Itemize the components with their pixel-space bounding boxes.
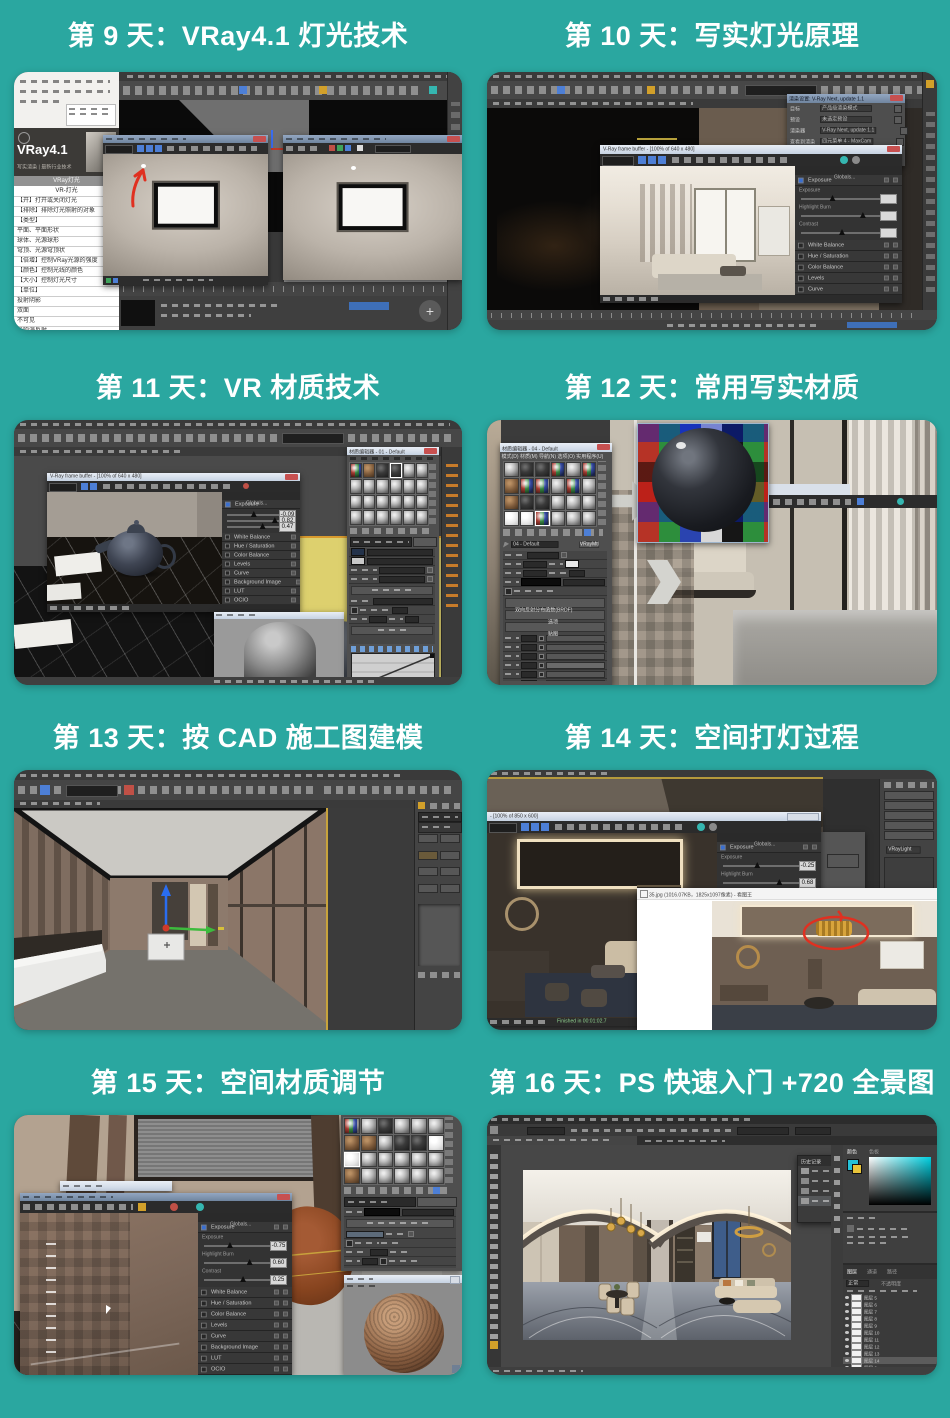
highlight-burn-value[interactable]: 0.60	[270, 1258, 287, 1268]
contrast-slider[interactable]: 0.25	[204, 1279, 286, 1281]
layer-thumbnail[interactable]	[851, 1343, 862, 1350]
blue-channel-icon[interactable]	[345, 145, 351, 151]
vfb-icons[interactable]	[103, 484, 233, 489]
material-swatches[interactable]	[349, 462, 429, 526]
material-swatch-icon[interactable]	[582, 511, 597, 526]
vfb-icon[interactable]	[531, 823, 539, 831]
rollout-header[interactable]	[346, 1219, 454, 1228]
me-side-buttons[interactable]	[429, 462, 436, 524]
checkbox-icon[interactable]	[225, 571, 230, 576]
checkbox-icon[interactable]	[539, 645, 544, 650]
command-panel-strip[interactable]	[922, 72, 937, 330]
background-window-titlebar[interactable]	[60, 1181, 172, 1191]
toolbar-input[interactable]	[282, 433, 344, 444]
material-swatch-icon[interactable]	[582, 478, 597, 493]
material-swatches[interactable]	[503, 461, 597, 527]
modifier-dropdown[interactable]	[418, 822, 462, 833]
material-swatch-icon[interactable]	[350, 479, 362, 494]
vfb-icon[interactable]	[155, 145, 162, 152]
red-channel-icon[interactable]	[329, 145, 335, 151]
material-swatch-icon[interactable]	[403, 463, 415, 478]
toolbar-icon[interactable]	[319, 86, 327, 94]
max-toolbar[interactable]	[14, 429, 462, 447]
close-icon[interactable]	[424, 448, 437, 454]
exposure-slider[interactable]	[801, 198, 896, 200]
vfb-icons[interactable]	[286, 146, 322, 151]
me-toolbar-icon[interactable]	[433, 1187, 440, 1194]
param-row[interactable]	[344, 1248, 456, 1257]
vfb-window[interactable]: V-Ray frame buffer - [100% of 640 x 480]	[47, 473, 300, 612]
layer-thumbnail[interactable]	[851, 1294, 862, 1301]
panel-button[interactable]	[884, 831, 934, 840]
resolution-dropdown[interactable]	[375, 145, 411, 153]
curve-toolbar[interactable]	[351, 646, 433, 652]
material-swatch-icon[interactable]	[504, 495, 519, 510]
correction-row[interactable]: Color Balance	[222, 551, 300, 560]
eye-icon[interactable]	[845, 1303, 849, 1306]
viewport-label[interactable]	[20, 802, 100, 805]
checkbox-icon[interactable]	[225, 501, 231, 507]
material-swatch-icon[interactable]	[416, 495, 428, 510]
me-titlebar[interactable]: 材质编辑器 - 04 - Default	[500, 443, 612, 452]
close-icon[interactable]	[597, 444, 610, 450]
lock-row[interactable]	[847, 1290, 917, 1292]
window-buttons[interactable]	[787, 813, 819, 821]
material-swatch-icon[interactable]	[428, 1118, 444, 1134]
material-swatch-icon[interactable]	[416, 510, 428, 525]
eye-icon[interactable]	[845, 1296, 849, 1299]
material-swatch-icon[interactable]	[403, 510, 415, 525]
expand-icon[interactable]	[274, 1301, 279, 1306]
correction-row[interactable]: Levels	[795, 273, 902, 284]
material-swatch-icon[interactable]	[551, 495, 566, 510]
material-swatch-icon[interactable]	[411, 1168, 427, 1184]
expand-icon[interactable]	[274, 1312, 279, 1317]
color-chip-icon[interactable]	[565, 560, 579, 568]
highlight-burn-slider[interactable]	[801, 215, 896, 217]
background-swatch-icon[interactable]	[852, 1164, 862, 1174]
material-swatch-icon[interactable]	[390, 510, 402, 525]
spinner-icon[interactable]	[408, 1231, 414, 1237]
material-swatch-icon[interactable]	[378, 1152, 394, 1168]
create-tab-icon[interactable]	[418, 802, 425, 809]
image-viewer-window[interactable]: 35.jpg (1016.07KB，1825x1097像素) - 看图王	[637, 888, 937, 1030]
material-swatch-icon[interactable]	[344, 1118, 360, 1134]
preview-titlebar[interactable]	[344, 1275, 462, 1283]
material-name-dropdown[interactable]: 04 - Default	[511, 541, 559, 547]
checkbox-icon[interactable]	[798, 253, 804, 259]
checkbox-icon[interactable]	[201, 1300, 207, 1306]
material-swatch-icon[interactable]	[390, 479, 402, 494]
param-row[interactable]	[349, 557, 435, 566]
correction-row[interactable]: OCIO	[222, 596, 300, 604]
correction-row[interactable]: White Balance	[222, 533, 300, 542]
vfb-icon[interactable]	[709, 823, 717, 831]
max-menubar[interactable]	[493, 75, 923, 78]
list-item[interactable]: 双面	[14, 307, 119, 317]
checkbox-icon[interactable]	[539, 672, 544, 677]
exposure-slider[interactable]: -0.75	[204, 1245, 286, 1247]
checkbox-icon[interactable]	[225, 598, 230, 603]
tab-layers[interactable]: 图层	[847, 1268, 857, 1275]
material-swatches[interactable]	[343, 1117, 445, 1185]
menu-items[interactable]	[491, 1118, 751, 1121]
eye-icon[interactable]	[845, 1359, 849, 1362]
timeline-bar[interactable]	[487, 310, 937, 320]
correction-row[interactable]: Levels	[222, 560, 300, 569]
material-swatch-icon[interactable]	[535, 495, 550, 510]
reset-icon[interactable]	[283, 1323, 288, 1328]
document-tab-active[interactable]	[487, 1136, 637, 1145]
checkbox-icon[interactable]	[225, 580, 230, 585]
material-editor-window[interactable]: 材质编辑器 - 04 - Default 模式(D) 材质(M) 导航(N) 选…	[500, 443, 612, 685]
vraylight-label[interactable]: VRayLight	[886, 846, 921, 853]
properties-row[interactable]	[843, 1223, 937, 1234]
rollout-header2[interactable]	[351, 626, 433, 635]
document-tab[interactable]	[645, 1140, 725, 1142]
me-toolbar-icons[interactable]	[350, 528, 434, 534]
vfb-icon[interactable]	[521, 823, 529, 831]
material-swatch-icon[interactable]	[394, 1118, 410, 1134]
vfb-icon[interactable]	[90, 483, 97, 490]
correction-row[interactable]: Hue / Saturation	[198, 1298, 292, 1309]
material-editor-window[interactable]	[341, 1115, 462, 1271]
render-setup-row[interactable]: 渲染器 V-Ray Next, update 1.1	[787, 125, 905, 136]
material-swatch-icon[interactable]	[416, 463, 428, 478]
vfb-titlebar[interactable]	[283, 135, 462, 143]
material-editor-window[interactable]: 材质编辑器 - 01 - Default	[347, 447, 439, 677]
reset-icon[interactable]	[283, 1334, 288, 1339]
checkbox-icon[interactable]	[225, 544, 230, 549]
vfb-toolbar[interactable]	[487, 821, 821, 833]
material-swatch-icon[interactable]	[394, 1168, 410, 1184]
expand-icon[interactable]	[884, 276, 889, 281]
toolbar-icon[interactable]	[429, 86, 437, 94]
tool-icons[interactable]	[490, 1149, 498, 1339]
material-swatch-icon[interactable]	[361, 1168, 377, 1184]
highlight-burn-value[interactable]	[880, 211, 897, 221]
vfb-icon[interactable]	[137, 145, 144, 152]
material-swatch-icon[interactable]	[376, 463, 388, 478]
material-swatch-icon[interactable]	[551, 478, 566, 493]
object-name-field[interactable]	[418, 812, 462, 822]
preview-menubar[interactable]	[347, 1285, 377, 1287]
param-row[interactable]	[344, 1257, 456, 1266]
blend-mode-dropdown[interactable]: 正常	[846, 1280, 869, 1286]
material-swatch-icon[interactable]	[520, 478, 535, 493]
rollout-header-brdf[interactable]: 双向反射分布函数(BRDF)	[505, 598, 605, 608]
panel-button[interactable]	[440, 834, 460, 843]
vfb-icons[interactable]	[23, 1204, 133, 1210]
reset-icon[interactable]	[283, 1225, 288, 1230]
material-swatch-icon[interactable]	[566, 478, 581, 493]
checkbox-icon[interactable]	[798, 177, 804, 183]
vfb-icon[interactable]	[638, 156, 646, 164]
globals-header[interactable]: Globals...	[717, 833, 821, 842]
correction-row[interactable]: Curve	[198, 1331, 292, 1342]
layer-row[interactable]: 图层 6	[843, 1301, 937, 1308]
checkbox-icon[interactable]	[201, 1366, 207, 1372]
toolbar-icons2[interactable]	[348, 434, 454, 442]
close-icon[interactable]	[277, 1194, 290, 1200]
material-swatch-icon[interactable]	[390, 495, 402, 510]
stack-tool-icons[interactable]	[418, 972, 460, 978]
dropdown-arrow-icon[interactable]	[894, 105, 902, 113]
map-button-texture[interactable]	[546, 662, 605, 669]
toolbar-icon[interactable]	[557, 86, 565, 94]
vfb-icon[interactable]	[897, 498, 904, 505]
layer-row[interactable]: 图层 10	[843, 1329, 937, 1336]
reset-icon[interactable]	[893, 243, 898, 248]
material-swatch-icon[interactable]	[582, 462, 597, 477]
layer-row[interactable]: 图层 9	[843, 1322, 937, 1329]
vfb-icon[interactable]	[852, 156, 860, 164]
globals-header[interactable]: Globals...	[222, 492, 300, 500]
eye-icon[interactable]	[845, 1345, 849, 1348]
reset-icon[interactable]	[893, 287, 898, 292]
correction-row[interactable]: White Balance	[198, 1287, 292, 1298]
highlight-burn-slider[interactable]: 0.60	[204, 1262, 286, 1264]
param-row[interactable]	[349, 548, 435, 557]
layer-thumbnail[interactable]	[851, 1315, 862, 1322]
tab-swatches[interactable]: 色板	[869, 1148, 879, 1155]
toolbar-icons[interactable]	[18, 434, 278, 442]
ribbon-tabs[interactable]	[20, 450, 180, 453]
record-icon[interactable]	[170, 1203, 178, 1211]
material-swatch-icon[interactable]	[361, 1152, 377, 1168]
ps-tab-bar[interactable]	[487, 1136, 937, 1145]
correction-row[interactable]: Curve	[222, 569, 300, 578]
correction-row[interactable]: Background Image	[198, 1342, 292, 1353]
globals-header[interactable]: Globals...	[198, 1213, 292, 1222]
contrast-slider[interactable]: 0.47	[227, 526, 295, 528]
param-row[interactable]	[503, 578, 607, 587]
layer-thumbnail[interactable]	[851, 1336, 862, 1343]
panel-button[interactable]	[884, 791, 934, 800]
layer-thumbnail[interactable]	[851, 1357, 862, 1364]
checkbox-icon[interactable]	[539, 636, 544, 641]
contrast-slider[interactable]	[801, 232, 896, 234]
contrast-value[interactable]: 0.25	[270, 1275, 287, 1285]
layer-row[interactable]: 图层 12	[843, 1343, 937, 1350]
vfb-icons[interactable]	[167, 146, 257, 151]
layer-thumbnail[interactable]	[851, 1301, 862, 1308]
param-row[interactable]	[349, 606, 435, 615]
material-swatch-icon[interactable]	[376, 510, 388, 525]
expand-icon[interactable]	[803, 845, 808, 850]
tab-paths[interactable]: 路径	[887, 1268, 897, 1275]
vfb-toolbar[interactable]	[20, 1201, 292, 1213]
checkbox-icon[interactable]	[201, 1344, 207, 1350]
ps-menubar[interactable]	[487, 1115, 937, 1124]
reset-icon[interactable]	[283, 1356, 288, 1361]
map-row[interactable]	[503, 643, 607, 652]
spinner-icon[interactable]	[427, 576, 433, 582]
command-panel-tabs[interactable]	[884, 782, 934, 788]
layer-thumbnail[interactable]	[851, 1350, 862, 1357]
material-swatch-selected-icon[interactable]	[344, 1152, 360, 1168]
toolbar-icon[interactable]	[239, 86, 247, 94]
list-item[interactable]: 投射阴影	[14, 297, 119, 307]
list-item[interactable]: 【单位】	[14, 287, 119, 297]
checkbox-icon[interactable]	[380, 1258, 387, 1265]
material-swatch-icon[interactable]	[378, 1168, 394, 1184]
toolbar-icons2[interactable]	[324, 786, 454, 794]
channel-dropdown[interactable]	[49, 483, 77, 492]
me-side-buttons[interactable]	[598, 461, 606, 525]
close-icon[interactable]	[890, 95, 903, 101]
expand-icon[interactable]	[274, 1225, 279, 1230]
material-swatch-selected-icon[interactable]	[535, 511, 550, 526]
viewport-corridor[interactable]	[14, 808, 328, 1030]
color-field[interactable]	[869, 1157, 931, 1205]
param-row[interactable]	[503, 587, 607, 596]
tab-channels[interactable]: 通道	[867, 1268, 877, 1275]
expand-icon[interactable]	[884, 178, 889, 183]
vfb-titlebar[interactable]: - [100% of 850 x 600]	[487, 812, 821, 821]
panel-icons[interactable]	[834, 1153, 840, 1233]
material-swatch-icon[interactable]	[551, 511, 566, 526]
reset-icon[interactable]	[812, 845, 817, 850]
param-row[interactable]	[503, 551, 607, 560]
eye-icon[interactable]	[845, 1352, 849, 1355]
material-swatch-icon[interactable]	[566, 511, 581, 526]
channel-dropdown[interactable]	[602, 156, 634, 166]
correction-row[interactable]: Color Balance	[795, 262, 902, 273]
vfb-icons[interactable]	[672, 157, 792, 163]
checkbox-icon[interactable]	[225, 589, 230, 594]
vfb-icon[interactable]	[541, 823, 549, 831]
material-swatch-icon[interactable]	[376, 479, 388, 494]
me-toolbar-icon[interactable]	[584, 529, 591, 536]
panel-button[interactable]	[440, 884, 460, 893]
max-toolbar[interactable]	[14, 780, 462, 800]
material-swatch-icon[interactable]	[416, 479, 428, 494]
param-row[interactable]	[503, 560, 607, 569]
material-name-dropdown[interactable]	[350, 537, 412, 547]
material-name-dropdown[interactable]	[344, 1197, 416, 1207]
doc-toolbar-row3[interactable]	[20, 100, 60, 103]
expand-icon[interactable]	[291, 571, 296, 576]
selection-filter[interactable]	[66, 785, 118, 797]
layer-row[interactable]: 图层 5	[843, 1294, 937, 1301]
vfb-titlebar[interactable]: V-Ray frame buffer - [100% of 640 x 480]	[600, 145, 902, 154]
command-panel-icon[interactable]	[926, 80, 934, 88]
command-panel[interactable]	[414, 800, 462, 1030]
layer-thumbnail[interactable]	[851, 1329, 862, 1336]
reset-icon[interactable]	[893, 254, 898, 259]
material-swatch-icon[interactable]	[582, 495, 597, 510]
me-titlebar[interactable]: 材质编辑器 - 01 - Default	[347, 447, 439, 455]
map-button[interactable]	[546, 644, 605, 651]
eye-icon[interactable]	[845, 1317, 849, 1320]
expand-icon[interactable]	[884, 243, 889, 248]
material-swatch-icon[interactable]	[428, 1135, 444, 1151]
contrast-value[interactable]: 0.47	[279, 522, 296, 532]
checkbox-icon[interactable]	[798, 275, 804, 281]
checkbox-icon[interactable]	[225, 535, 230, 540]
material-type-button[interactable]: VRayMtl	[579, 541, 599, 547]
vfb-icon[interactable]	[697, 823, 705, 831]
toolbar-icons2[interactable]	[821, 86, 929, 94]
material-swatch-icon[interactable]	[394, 1135, 410, 1151]
checkbox-icon[interactable]	[201, 1333, 207, 1339]
max-menubar[interactable]	[20, 423, 450, 426]
layer-thumbnail[interactable]	[851, 1308, 862, 1315]
vfb-window[interactable]: Globals... Exposure Exposure -0.75 Highl…	[20, 1193, 292, 1375]
material-swatch-icon[interactable]	[403, 479, 415, 494]
tool-preset-icon[interactable]	[490, 1126, 498, 1134]
render-setup-row[interactable]: 预设 未选定预设	[787, 114, 905, 125]
material-swatch-icon[interactable]	[551, 462, 566, 477]
toolbar-icon[interactable]	[647, 86, 655, 94]
vfb-toolbar[interactable]	[283, 143, 462, 154]
material-swatch-icon[interactable]	[535, 462, 550, 477]
correction-row[interactable]: Hue / Saturation	[222, 542, 300, 551]
vfb-icon[interactable]	[658, 156, 666, 164]
dropdown-arrow-icon[interactable]	[894, 116, 902, 124]
expand-icon[interactable]	[291, 553, 296, 558]
vfb-toolbar[interactable]	[47, 481, 300, 492]
vfb-icon[interactable]	[196, 1203, 204, 1211]
color-bar[interactable]	[364, 1208, 400, 1216]
layer-row[interactable]: 图层 7	[843, 1308, 937, 1315]
panel-button[interactable]	[884, 821, 934, 830]
eye-icon[interactable]	[845, 1324, 849, 1327]
region-render-icon[interactable]	[840, 156, 848, 164]
checkbox-icon[interactable]	[539, 681, 544, 682]
expand-icon[interactable]	[296, 580, 300, 585]
material-swatch-icon[interactable]	[363, 463, 375, 478]
eye-icon[interactable]	[845, 1331, 849, 1334]
dialog-button[interactable]	[827, 854, 859, 868]
material-swatch-icon[interactable]	[350, 463, 362, 478]
material-swatch-icon[interactable]	[344, 1168, 360, 1184]
vfb-toolbar[interactable]	[600, 154, 902, 166]
expand-icon[interactable]	[291, 598, 296, 603]
expand-icon[interactable]	[274, 1290, 279, 1295]
doc-toolbar-row[interactable]	[20, 80, 110, 83]
material-swatch-icon[interactable]	[535, 478, 550, 493]
param-row[interactable]	[349, 566, 435, 575]
panel-button[interactable]	[418, 834, 438, 843]
snap-toggle-icon[interactable]	[40, 785, 50, 795]
map-button[interactable]	[546, 671, 605, 678]
reset-icon[interactable]	[893, 178, 898, 183]
param-row[interactable]	[349, 615, 435, 624]
material-swatch-icon[interactable]	[504, 478, 519, 493]
checkbox-icon[interactable]	[225, 553, 230, 558]
expand-icon[interactable]	[291, 544, 296, 549]
checkbox-icon[interactable]	[346, 1240, 353, 1247]
command-panel-rows[interactable]	[926, 112, 935, 292]
param-row[interactable]	[503, 569, 607, 578]
reset-icon[interactable]	[283, 1345, 288, 1350]
correction-row[interactable]: OCIO	[198, 1364, 292, 1375]
exposure-slider[interactable]: -0.25	[723, 865, 815, 867]
expand-icon[interactable]	[291, 535, 296, 540]
material-swatch-icon[interactable]	[363, 495, 375, 510]
me-menubar[interactable]	[350, 457, 436, 460]
material-swatch-icon[interactable]	[411, 1118, 427, 1134]
material-swatch-icon[interactable]	[363, 479, 375, 494]
correction-row[interactable]: Hue / Saturation	[795, 251, 902, 262]
correction-row[interactable]: White Balance	[795, 240, 902, 251]
close-icon[interactable]	[887, 146, 900, 152]
material-swatch-icon[interactable]	[520, 495, 535, 510]
tab-color[interactable]: 颜色	[847, 1148, 857, 1155]
me-side-buttons[interactable]	[445, 1117, 453, 1183]
